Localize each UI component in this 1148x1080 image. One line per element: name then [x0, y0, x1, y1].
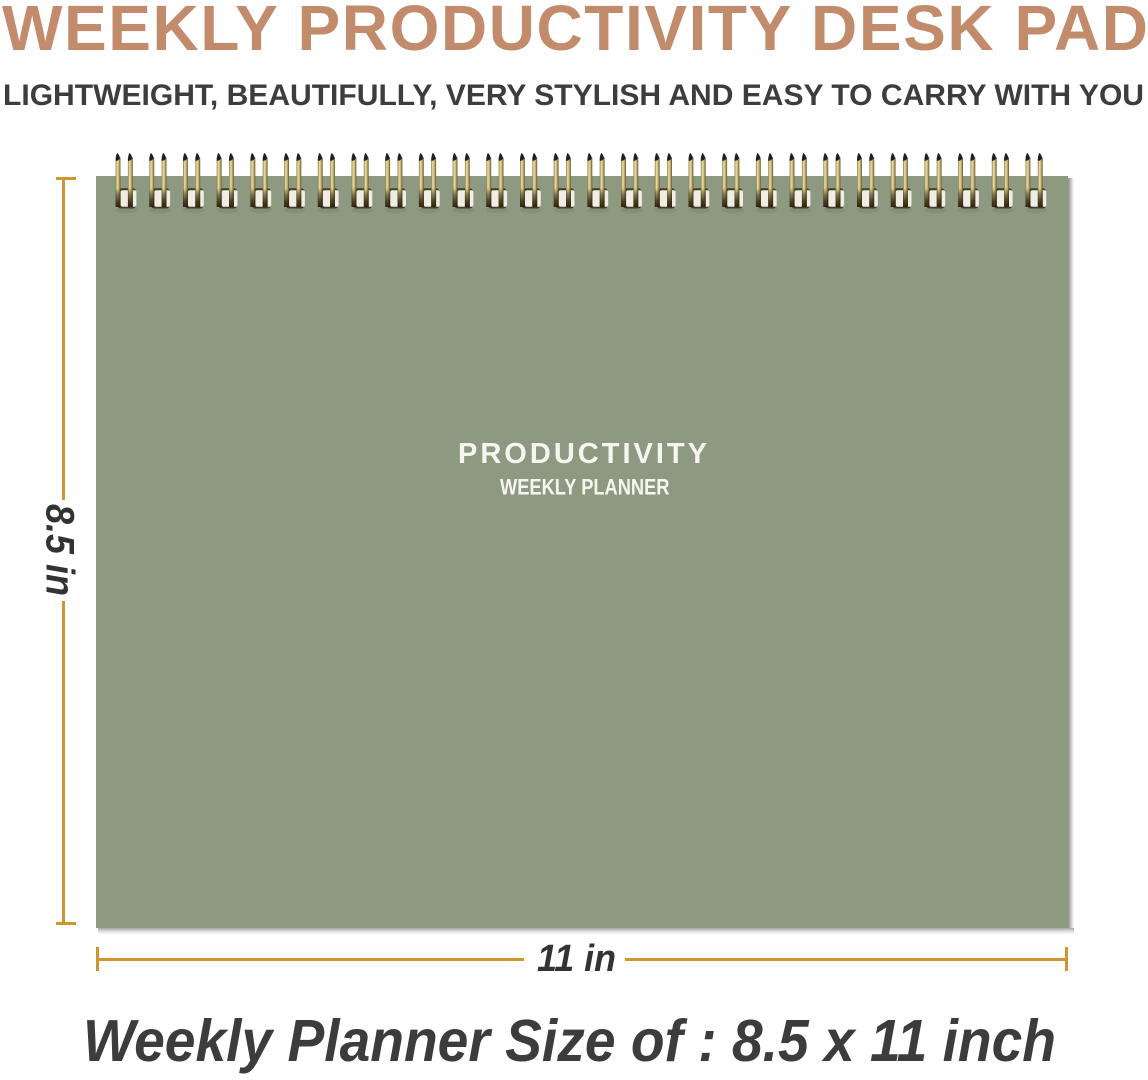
svg-text:11 in: 11 in	[537, 938, 616, 980]
svg-text:LIGHTWEIGHT, BEAUTIFULLY, VERY: LIGHTWEIGHT, BEAUTIFULLY, VERY STYLISH A…	[3, 79, 1144, 112]
svg-text:WEEKLY PRODUCTIVITY DESK PAD: WEEKLY PRODUCTIVITY DESK PAD	[2, 0, 1148, 64]
svg-text:Weekly Planner Size of : 8.5 x: Weekly Planner Size of : 8.5 x 11 inch	[83, 1008, 1056, 1074]
svg-text:8.5 in: 8.5 in	[38, 504, 82, 596]
svg-text:WEEKLY PLANNER: WEEKLY PLANNER	[500, 475, 670, 500]
svg-text:PRODUCTIVITY: PRODUCTIVITY	[458, 438, 707, 470]
